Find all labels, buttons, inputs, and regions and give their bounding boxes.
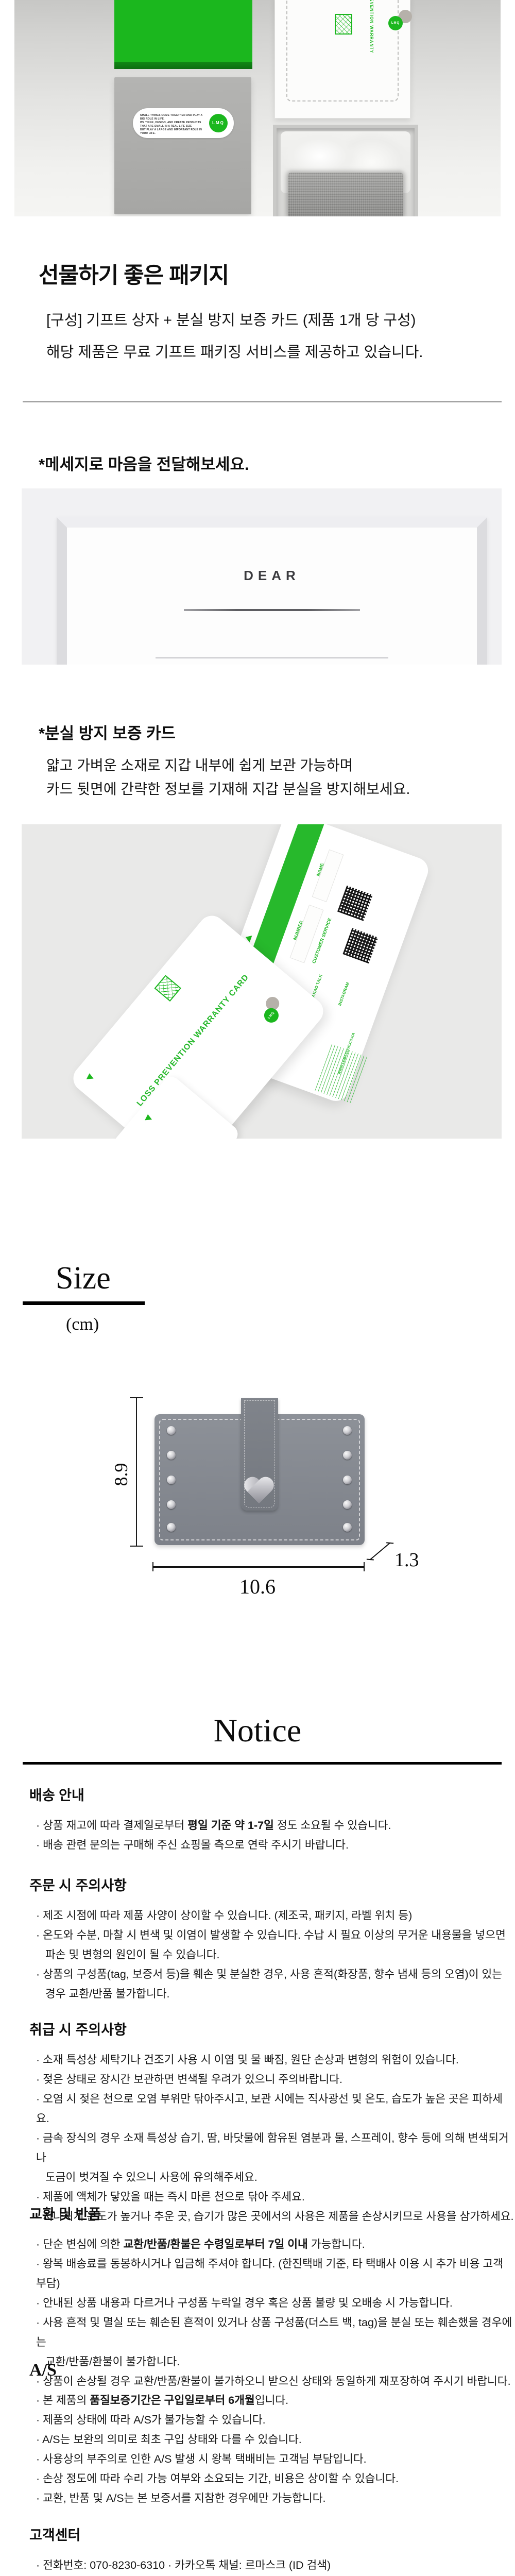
dear-text: DEAR — [67, 568, 477, 584]
height-value: 8.9 — [110, 1454, 133, 1495]
heart-clasp-icon — [243, 1478, 276, 1507]
notice-line-text: · 안내된 상품 내용과 다르거나 구성품 누락일 경우 혹은 상품 불량 및 … — [36, 2297, 453, 2309]
stud-icon — [167, 1500, 176, 1509]
warranty-text-2: 카드 뒷면에 간략한 정보를 기재해 지갑 분실을 방지해보세요. — [46, 778, 410, 799]
stud-icon — [343, 1523, 352, 1532]
depth-dimension-line — [369, 1543, 390, 1561]
arrow-icon — [86, 1073, 94, 1079]
notice-line-text: · 손상 정도에 따라 수리 가능 여부와 소요되는 기간, 비용은 상이할 수… — [36, 2472, 399, 2485]
notice-line-text: · 본 제품의 — [36, 2394, 90, 2406]
gift-box-base: SMALL THINGS COME TOGETHER AND PLAY A BI… — [114, 77, 251, 214]
box-label-line: SMALL THINGS COME TOGETHER AND PLAY A BI… — [140, 114, 208, 121]
notice-line-text: 가능합니다. — [308, 2238, 365, 2250]
notice-line-text: 파손 및 변형의 원인이 될 수 있습니다. — [45, 1948, 220, 1961]
notice-section-heading: 주문 시 주의사항 — [0, 1877, 515, 1894]
notice-line-text: · 배송 관련 문의는 구매해 주신 쇼핑몰 측으로 연락 주시기 바랍니다. — [36, 1839, 349, 1851]
notice-line-text: · 사용 흔적 및 멸실 또는 훼손된 흔적이 있거나 상품 구성품(더스트 백… — [36, 2316, 512, 2348]
notice-line: · 배송 관련 문의는 구매해 주신 쇼핑몰 측으로 연락 주시기 바랍니다. — [0, 1835, 515, 1855]
notice-line-text: · A/S는 보완의 의미로 최초 구입 상태와 다를 수 있습니다. — [36, 2433, 302, 2446]
notice-line-text: · 제품에 액체가 닿았을 때는 즉시 마른 천으로 닦아 주세요. — [36, 2191, 305, 2203]
notice-line: · 제조 시점에 따라 제품 사양이 상이할 수 있습니다. (제조국, 패키지… — [0, 1906, 515, 1925]
writing-line — [184, 609, 360, 611]
stud-icon — [167, 1451, 176, 1460]
brand-circles-icon: LMQ — [388, 10, 412, 30]
notice-line-text: · 금속 장식의 경우 소재 특성상 습기, 땀, 바닷물에 함유된 염분과 물… — [36, 2132, 509, 2164]
warranty-card-title-vertical: LOSS PREVENTION WARRANTY CARD — [365, 0, 374, 59]
notice-line-text: 정도 소요될 수 있습니다. — [274, 1819, 391, 1832]
gift-box-lid — [114, 0, 252, 62]
packaging-photo: SMALL THINGS COME TOGETHER AND PLAY A BI… — [14, 0, 501, 216]
notice-section-title: Notice — [0, 1711, 515, 1750]
notice-line-text: · 제품의 상태에 따라 A/S가 불가능할 수 있습니다. — [36, 2414, 266, 2426]
notice-line: · 교환, 반품 및 A/S는 본 보증서를 지참한 경우에만 가능합니다. — [0, 2488, 515, 2508]
message-heading: *메세지로 마음을 전달해보세요. — [39, 451, 249, 474]
stud-icon — [167, 1426, 176, 1435]
notice-line: · 제품의 상태에 따라 A/S가 불가능할 수 있습니다. — [0, 2410, 515, 2430]
name-field — [312, 850, 344, 902]
notice-line-text: · 오염 시 젖은 천으로 오염 부위만 닦아주시고, 보관 시에는 직사광선 … — [36, 2093, 503, 2125]
notice-line: 도금이 벗겨질 수 있으니 사용에 유의해주세요. — [0, 2167, 515, 2187]
notice-section-heading: 배송 안내 — [0, 1787, 515, 1804]
notice-section: 고객센터· 전화번호: 070-8230-6310 · 카카오톡 채널: 르마스… — [0, 2527, 515, 2576]
notice-line: 경우 교환/반품 불가합니다. — [0, 1984, 515, 2004]
notice-line: · 단순 변심에 의한 교환/반품/환불은 수령일로부터 7일 이내 가능합니다… — [0, 2234, 515, 2254]
notice-line-text: · 온도와 수분, 마찰 시 변색 및 이염이 발생할 수 있습니다. 수납 시… — [36, 1929, 506, 1941]
notice-line: · 소재 특성상 세탁기나 건조기 사용 시 이염 및 물 빠짐, 원단 손상과… — [0, 2050, 515, 2070]
notice-line: · 젖은 상태로 장시간 보관하면 변색될 우려가 있으니 주의바랍니다. — [0, 2070, 515, 2089]
notice-line-text: 도금이 벗겨질 수 있으니 사용에 유의해주세요. — [45, 2171, 257, 2183]
notice-line-bold: 품질보증기간은 구입일로부터 6개월 — [90, 2394, 255, 2406]
notice-line-bold: 교환/반품/환불은 수령일로부터 7일 이내 — [124, 2238, 308, 2250]
notice-line: · 제품에 액체가 닿았을 때는 즉시 마른 천으로 닦아 주세요. — [0, 2187, 515, 2207]
message-card-photo: DEAR — [22, 488, 502, 665]
notice-line-text: · 젖은 상태로 장시간 보관하면 변색될 우려가 있으니 주의바랍니다. — [36, 2073, 342, 2086]
notice-line: · 사용상의 부주의로 인한 A/S 발생 시 왕복 택배비는 고객님 부담입니… — [0, 2449, 515, 2469]
notice-line: · 온도와 수분, 마찰 시 변색 및 이염이 발생할 수 있습니다. 수납 시… — [0, 1925, 515, 1945]
notice-line-bold: 평일 기준 약 1-7일 — [187, 1819, 274, 1832]
notice-line: · 손상 정도에 따라 수리 가능 여부와 소요되는 기간, 비용은 상이할 수… — [0, 2469, 515, 2488]
size-section-title: Size — [56, 1260, 111, 1297]
notice-line: 파손 및 변형의 원인이 될 수 있습니다. — [0, 1945, 515, 1964]
section-divider — [23, 401, 502, 402]
notice-line: · 상품의 구성품(tag, 보증서 등)을 훼손 및 분실한 경우, 사용 흔… — [0, 1964, 515, 1984]
qr-code-icon — [341, 927, 380, 965]
warranty-box-lid: LOSS PREVENTION WARRANTY CARD LMQ — [274, 0, 410, 118]
notice-line: · A/S는 보완의 의미로 최초 구입 상태와 다를 수 있습니다. — [0, 2430, 515, 2449]
notice-line-text: 입니다. — [255, 2394, 288, 2406]
stud-icon — [167, 1523, 176, 1532]
width-value: 10.6 — [221, 1574, 294, 1599]
depth-value: 1.3 — [394, 1549, 419, 1571]
box-label-text: SMALL THINGS COME TOGETHER AND PLAY A BI… — [140, 114, 208, 135]
stud-icon — [343, 1500, 352, 1509]
size-unit: (cm) — [66, 1315, 99, 1334]
product-detail-page: SMALL THINGS COME TOGETHER AND PLAY A BI… — [0, 0, 515, 2576]
instagram-label: INSTAGRAM — [337, 981, 350, 1006]
notice-line: · 안내된 상품 내용과 다르거나 구성품 누락일 경우 혹은 상품 불량 및 … — [0, 2293, 515, 2313]
box-label-line: WE THINK, DESIGN, AND CREATE PRODUCTS TH… — [140, 121, 208, 128]
notice-divider — [23, 1762, 502, 1765]
size-title-underline — [23, 1301, 145, 1305]
warranty-cards-photo: NAME NUMBER CUSTOMER SERVICE KAKAO TALK … — [22, 824, 502, 1139]
gift-service-text: 해당 제품은 무료 기프트 패키징 서비스를 제공하고 있습니다. — [46, 340, 423, 362]
tick — [130, 1397, 143, 1398]
stud-icon — [343, 1451, 352, 1460]
notice-line: · 상품 재고에 따라 결제일로부터 평일 기준 약 1-7일 정도 소요될 수… — [0, 1816, 515, 1835]
notice-line: · 왕복 배송료를 동봉하시거나 입금해 주셔야 합니다. (한진택배 기준, … — [0, 2254, 515, 2293]
notice-line-text: · 왕복 배송료를 동봉하시거나 입금해 주셔야 합니다. (한진택배 기준, … — [36, 2258, 503, 2290]
height-dimension-line — [136, 1397, 137, 1547]
warranty-heading: *분실 방지 보증 카드 — [39, 720, 176, 743]
notice-section-heading: 교환 및 반품 — [0, 2206, 515, 2223]
notice-line-text: · 소재 특성상 세탁기나 건조기 사용 시 이염 및 물 빠짐, 원단 손상과… — [36, 2054, 459, 2066]
notice-line-text: · 교환, 반품 및 A/S는 본 보증서를 지참한 경우에만 가능합니다. — [36, 2492, 325, 2504]
tick — [130, 1546, 143, 1547]
notice-line-text: · 제조 시점에 따라 제품 사양이 상이할 수 있습니다. (제조국, 패키지… — [36, 1909, 412, 1922]
box-label-line: BUT PLAY A LARGE AND IMPORTANT ROLE IN Y… — [140, 128, 208, 135]
notice-section: 주문 시 주의사항· 제조 시점에 따라 제품 사양이 상이할 수 있습니다. … — [0, 1877, 515, 2004]
arrow-icon — [144, 1114, 152, 1120]
brand-circles-icon: LMQ — [256, 994, 287, 1026]
message-card: DEAR — [57, 517, 487, 665]
notice-section: 배송 안내· 상품 재고에 따라 결제일로부터 평일 기준 약 1-7일 정도 … — [0, 1787, 515, 1855]
notice-line: · 본 제품의 품질보증기간은 구입일로부터 6개월입니다. — [0, 2391, 515, 2410]
stud-icon — [343, 1476, 352, 1484]
width-dimension-line — [152, 1566, 365, 1568]
qr-code-icon — [336, 884, 374, 922]
open-box — [273, 125, 418, 216]
section-title-gift: 선물하기 좋은 패키지 — [39, 258, 229, 290]
gray-product-item — [288, 173, 403, 216]
notice-line-text: · 상품의 구성품(tag, 보증서 등)을 훼손 및 분실한 경우, 사용 흔… — [36, 1968, 502, 1980]
green-circle: LMQ — [388, 16, 403, 30]
notice-line-text: · 전화번호: 070-8230-6310 · 카카오톡 채널: 르마스크 (I… — [36, 2559, 331, 2571]
notice-section: A/S· 본 제품의 품질보증기간은 구입일로부터 6개월입니다.· 제품의 상… — [0, 2362, 515, 2508]
box-edge — [114, 62, 252, 69]
notice-line: · 사용 흔적 및 멸실 또는 훼손된 흔적이 있거나 상품 구성품(더스트 백… — [0, 2313, 515, 2352]
notice-line-text: 경우 교환/반품 불가합니다. — [45, 1988, 169, 2000]
box-label: SMALL THINGS COME TOGETHER AND PLAY A BI… — [133, 108, 234, 138]
notice-section-heading: 고객센터 — [0, 2527, 515, 2544]
brand-circle-icon: LMQ — [209, 114, 228, 132]
notice-line: · 금속 장식의 경우 소재 특성상 습기, 땀, 바닷물에 함유된 염분과 물… — [0, 2128, 515, 2167]
tick — [152, 1562, 153, 1571]
writing-line — [156, 657, 388, 658]
stud-icon — [167, 1476, 176, 1484]
gift-composition-text: [구성] 기프트 상자 + 분실 방지 보증 카드 (제품 1개 당 구성) — [46, 308, 416, 330]
warranty-card-print: LOSS PREVENTION WARRANTY CARD LMQ — [286, 0, 399, 101]
brand-crest-icon — [335, 14, 352, 35]
green-circle: LMQ — [261, 1005, 281, 1025]
notice-line-text: · 단순 변심에 의한 — [36, 2238, 124, 2250]
notice-line: · 전화번호: 070-8230-6310 · 카카오톡 채널: 르마스크 (I… — [0, 2555, 515, 2575]
notice-line-text: · 상품 재고에 따라 결제일로부터 — [36, 1819, 187, 1832]
warranty-text-1: 얇고 가벼운 소재로 지갑 내부에 쉽게 보관 가능하며 — [46, 754, 353, 775]
notice-line-text: · 사용상의 부주의로 인한 A/S 발생 시 왕복 택배비는 고객님 부담입니… — [36, 2453, 367, 2465]
notice-section: 취급 시 주의사항· 소재 특성상 세탁기나 건조기 사용 시 이염 및 물 빠… — [0, 2021, 515, 2226]
notice-section-heading: 취급 시 주의사항 — [0, 2021, 515, 2039]
brand-crest-icon — [154, 975, 181, 1002]
stud-icon — [343, 1426, 352, 1435]
notice-section-heading: A/S — [0, 2362, 515, 2379]
notice-line: · 오염 시 젖은 천으로 오염 부위만 닦아주시고, 보관 시에는 직사광선 … — [0, 2089, 515, 2128]
tick — [364, 1562, 365, 1571]
